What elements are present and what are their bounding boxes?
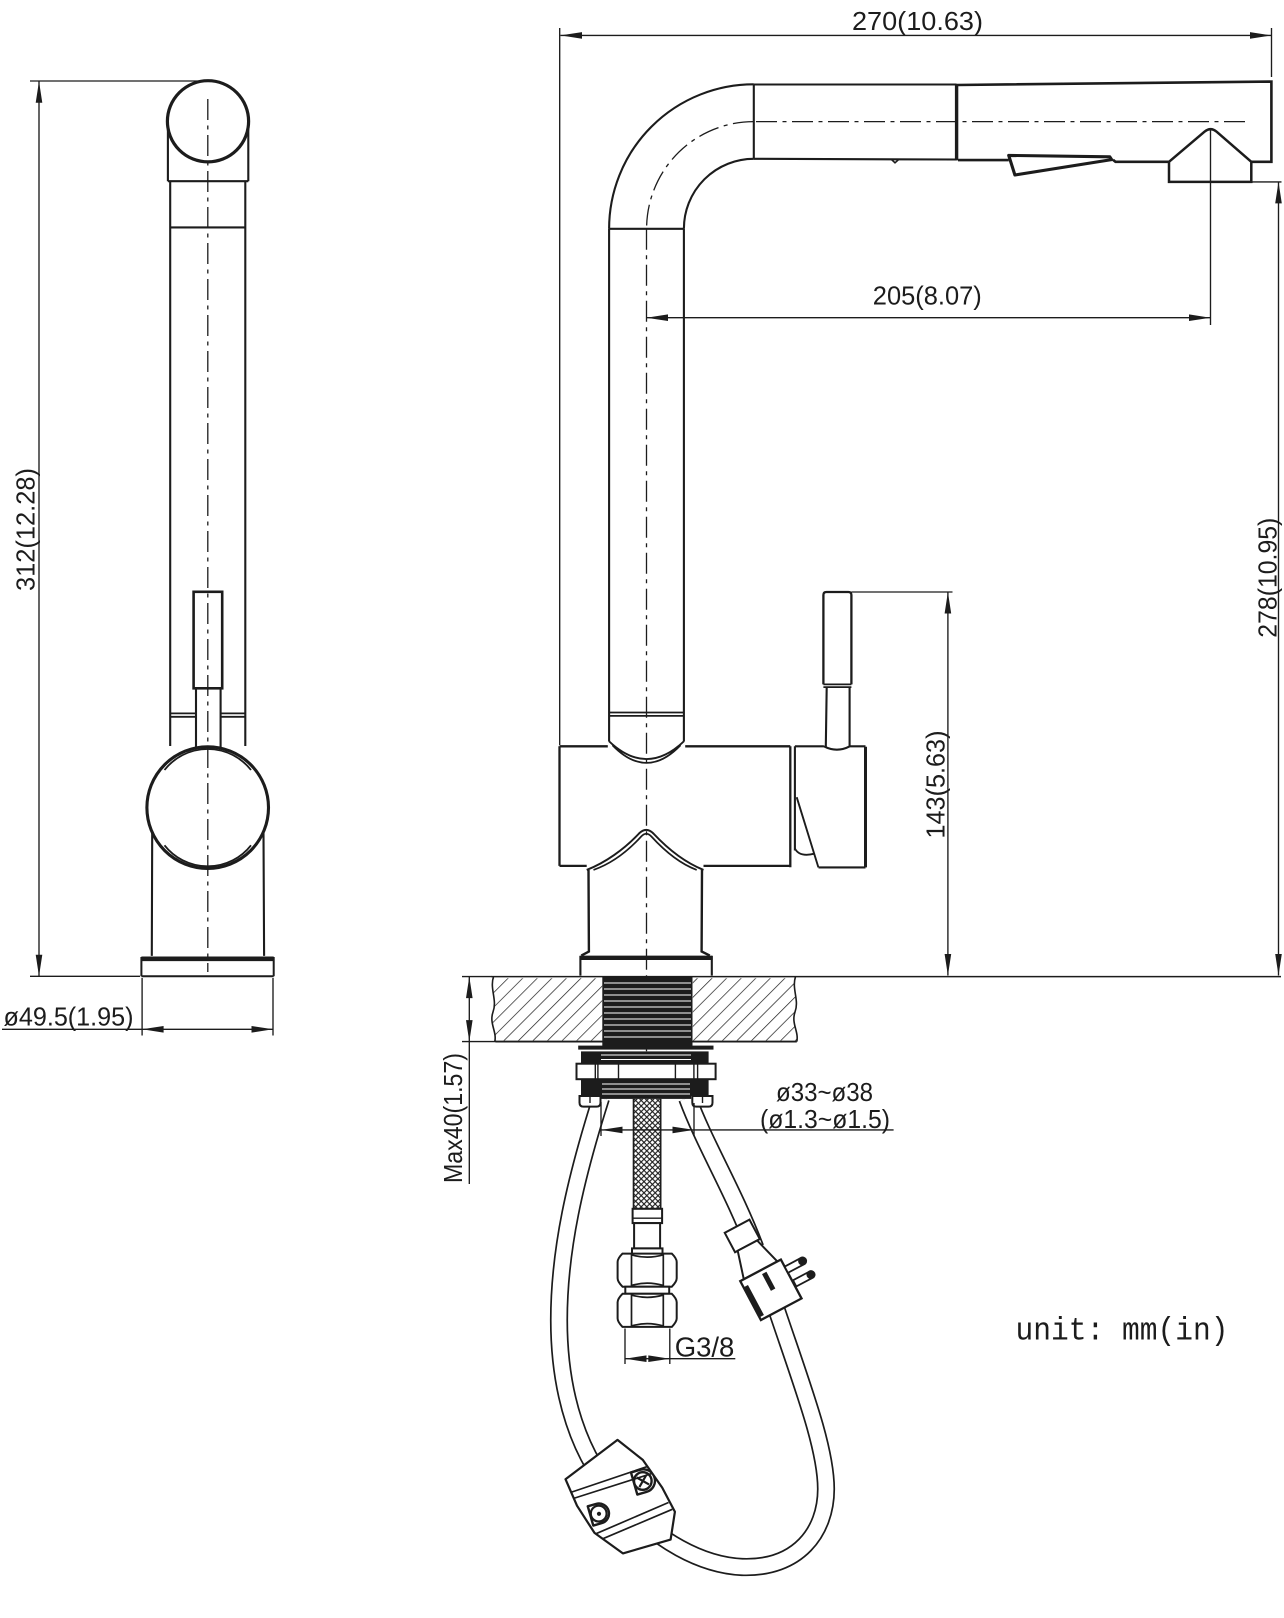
svg-text:270(10.63): 270(10.63) xyxy=(852,6,983,36)
svg-text:ø33~ø38: ø33~ø38 xyxy=(776,1077,873,1107)
svg-text:unit: mm(in): unit: mm(in) xyxy=(1016,1313,1229,1350)
svg-text:143(5.63): 143(5.63) xyxy=(921,731,951,839)
svg-text:G3/8: G3/8 xyxy=(675,1332,735,1363)
svg-text:Max40(1.57): Max40(1.57) xyxy=(438,1053,468,1183)
svg-text:312(12.28): 312(12.28) xyxy=(11,468,41,591)
svg-text:205(8.07): 205(8.07) xyxy=(873,281,982,311)
svg-text:(ø1.3~ø1.5): (ø1.3~ø1.5) xyxy=(760,1104,890,1134)
svg-text:278(10.95): 278(10.95) xyxy=(1253,518,1283,638)
svg-text:ø49.5(1.95): ø49.5(1.95) xyxy=(4,1002,134,1032)
